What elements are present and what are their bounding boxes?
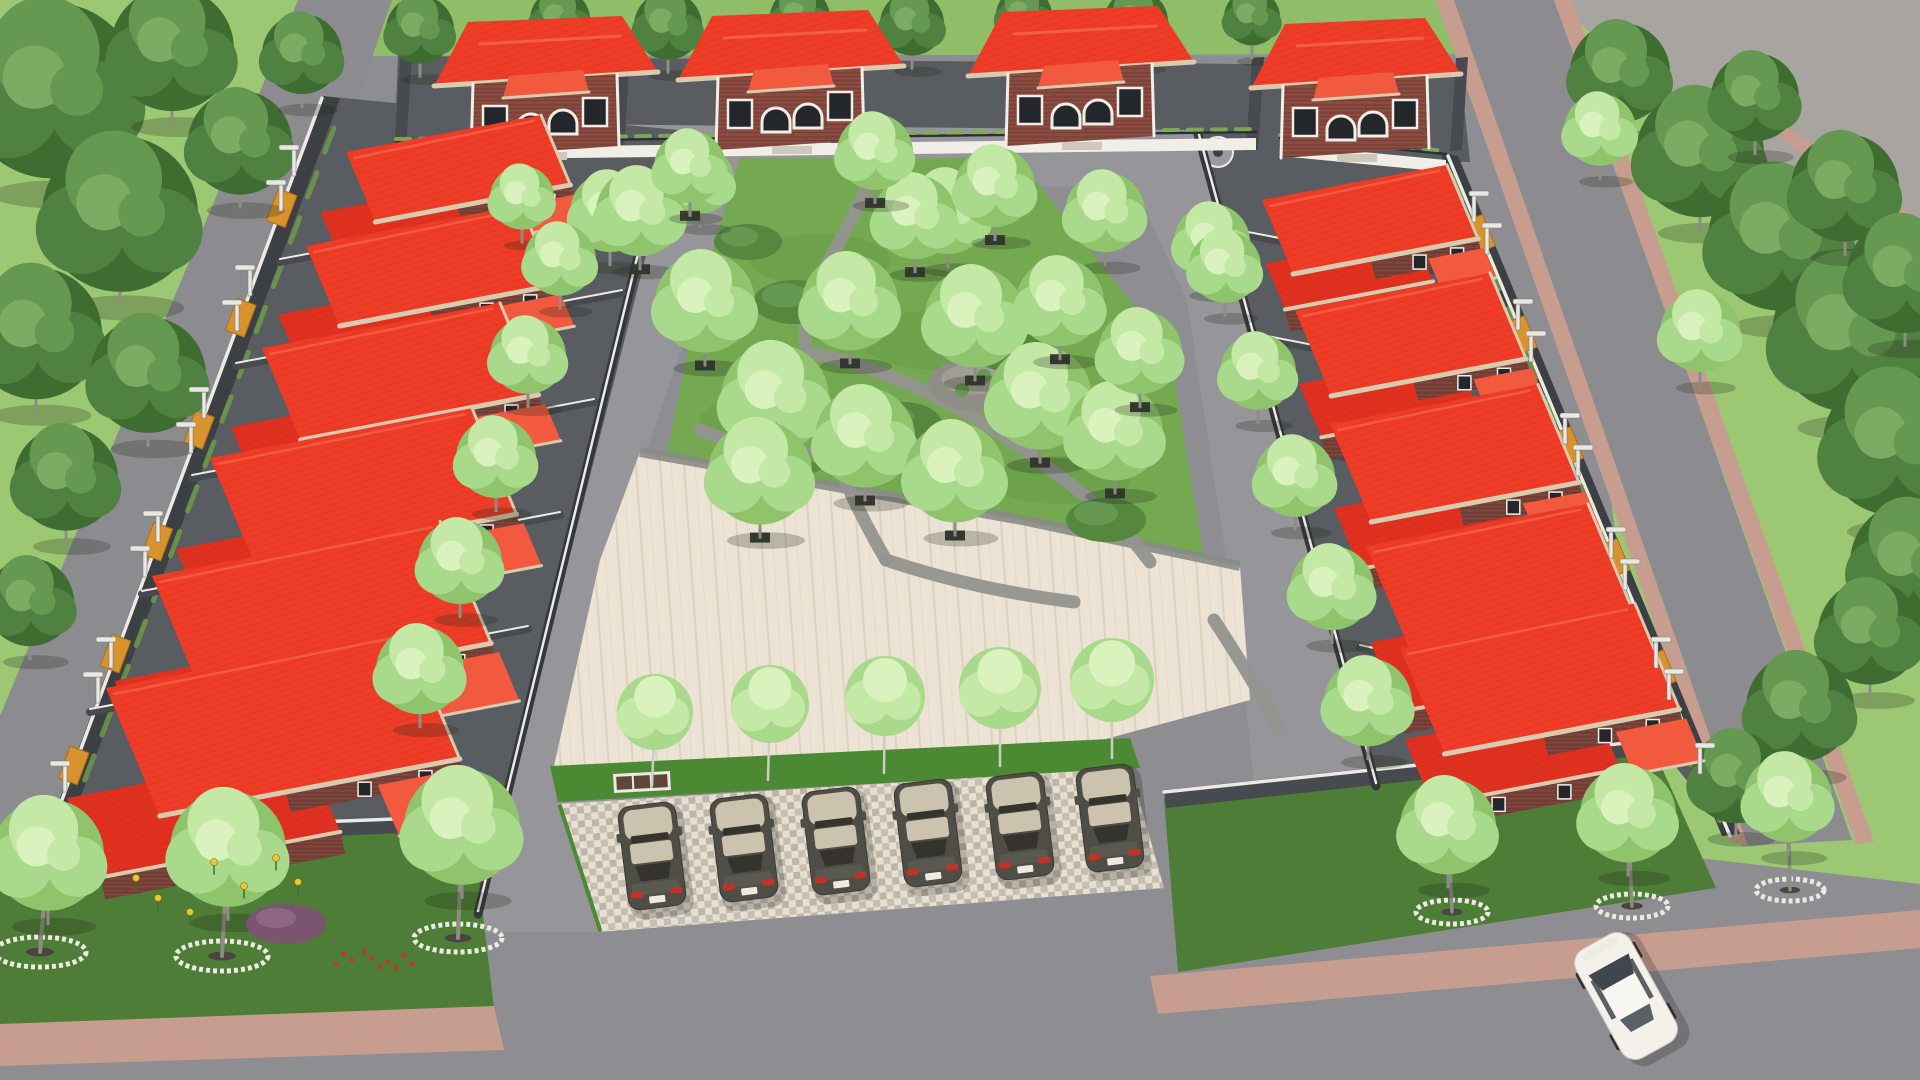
porch-arch: [1052, 104, 1080, 128]
house-window: [1507, 500, 1520, 514]
tree-canopy: [1224, 256, 1246, 278]
tree-shadow: [506, 404, 563, 416]
lamp-pole: [235, 305, 239, 331]
tree-shadow: [1418, 883, 1490, 898]
red-flower: [410, 962, 415, 967]
lamp-arm: [143, 511, 163, 516]
house-window: [1558, 785, 1571, 799]
house-window: [358, 782, 371, 796]
lamp-arm: [1573, 445, 1593, 450]
house-window: [1599, 729, 1612, 743]
red-flower: [342, 952, 347, 957]
entry-steps: [1062, 142, 1102, 150]
tree-shadow: [669, 213, 723, 225]
red-flower: [362, 950, 367, 955]
tree-canopy: [559, 249, 581, 271]
red-flower: [378, 965, 383, 970]
tree-shadow: [278, 104, 338, 117]
tree-shadow: [1579, 176, 1633, 188]
tree-shadow: [1236, 420, 1293, 432]
tree-canopy: [35, 313, 75, 353]
lamp-pole: [1576, 450, 1580, 476]
tree-shadow: [12, 918, 96, 936]
sapling-canopy: [863, 658, 907, 702]
estate-aerial-render: [0, 0, 1920, 1080]
house-window: [1118, 88, 1142, 116]
house-window: [1293, 108, 1317, 136]
porch-arch: [549, 110, 577, 134]
tree-canopy: [1257, 360, 1280, 383]
tree-canopy: [667, 15, 687, 35]
tree-shadow: [853, 200, 910, 212]
lamp-arm: [279, 145, 299, 150]
lamp-pole: [156, 516, 160, 542]
tree-canopy: [1139, 339, 1164, 364]
sunflower: [133, 875, 140, 882]
house-window: [728, 100, 752, 128]
red-flower: [402, 953, 407, 958]
lamp-arm: [96, 637, 116, 642]
tree-canopy: [1787, 785, 1813, 811]
tree-canopy: [29, 589, 55, 615]
tree-shadow: [1271, 527, 1331, 540]
lamp-arm: [1651, 637, 1671, 642]
lamp-pole: [248, 270, 252, 296]
lamp-arm: [176, 422, 196, 427]
lamp-pole: [1529, 336, 1533, 362]
sapling-canopy: [634, 676, 676, 718]
tree-shadow: [1204, 313, 1258, 325]
tree-shadow: [33, 538, 111, 555]
lamp-arm: [1482, 223, 1502, 228]
tree-canopy: [1599, 119, 1621, 141]
lamp-pole: [202, 392, 206, 418]
red-flower: [386, 960, 391, 965]
tree-canopy: [419, 19, 439, 39]
tree-canopy: [954, 457, 984, 487]
sunflower: [273, 855, 280, 862]
sapling-canopy: [749, 667, 792, 710]
tree-shadow: [1033, 355, 1099, 369]
lamp-pole: [1609, 532, 1613, 558]
lamp-pole: [1516, 304, 1520, 330]
tree-canopy: [461, 809, 496, 844]
sunflower: [295, 879, 302, 886]
tree-canopy: [171, 30, 208, 67]
lamp-pole: [1623, 564, 1627, 590]
tree-shadow: [1761, 851, 1827, 865]
red-flower: [350, 958, 355, 963]
tree-canopy: [774, 381, 806, 413]
tree-canopy: [864, 422, 894, 452]
tree-canopy: [849, 288, 878, 317]
lamp-arm: [130, 546, 150, 551]
tree-shadow: [681, 224, 732, 235]
sunflower: [187, 909, 194, 916]
lamp-arm: [1606, 527, 1626, 532]
lamp-pole: [1472, 196, 1476, 222]
porch-arch: [794, 104, 822, 128]
tree-canopy: [1869, 616, 1900, 647]
tree-canopy: [118, 190, 165, 237]
lamp-pole: [1563, 418, 1567, 444]
tree-shadow: [1676, 382, 1736, 395]
tree-canopy: [1699, 320, 1723, 344]
lamp-arm: [1560, 413, 1580, 418]
tree-canopy: [689, 156, 711, 178]
tree-shadow: [924, 531, 999, 547]
tree-canopy: [1844, 171, 1876, 203]
corner-quoin: [1427, 76, 1429, 148]
tree-shadow: [1728, 150, 1794, 164]
house-window: [1492, 797, 1505, 811]
tree-canopy: [1754, 84, 1780, 110]
tree-canopy: [459, 549, 484, 574]
house-window: [1018, 96, 1042, 124]
tree-shadow: [539, 306, 593, 318]
tree-shadow: [1085, 489, 1157, 504]
tree-shadow: [820, 359, 892, 374]
lamp-pole: [109, 642, 113, 668]
lamp-pole: [292, 150, 296, 176]
tree-canopy: [47, 837, 81, 871]
tree-canopy: [147, 357, 182, 392]
tree-shadow: [1598, 871, 1670, 886]
lamp-arm: [1469, 191, 1489, 196]
tree-canopy: [1799, 691, 1831, 723]
tree-canopy: [65, 462, 96, 493]
park-bush-highlight: [1074, 501, 1118, 525]
tree-canopy: [1699, 133, 1737, 171]
tree-canopy: [911, 14, 930, 33]
sapling-canopy: [977, 649, 1022, 694]
tree-canopy: [1294, 465, 1318, 489]
house-window: [583, 98, 607, 126]
corner-quoin: [716, 78, 718, 150]
porch-arch: [1084, 100, 1112, 124]
planter-box: [615, 773, 670, 792]
tree-canopy: [704, 287, 734, 317]
entry-steps: [1337, 154, 1377, 162]
sunflower: [211, 859, 218, 866]
tree-canopy: [1251, 9, 1268, 26]
porch-arch: [1327, 116, 1355, 140]
tree-canopy: [419, 657, 445, 683]
house-window: [1393, 100, 1417, 128]
purple-bush-highlight: [256, 908, 296, 928]
lamp-pole: [1698, 748, 1702, 774]
lamp-arm: [235, 265, 255, 270]
lamp-arm: [1513, 299, 1533, 304]
tree-shadow: [3, 655, 69, 669]
tree-shadow: [435, 613, 498, 626]
corner-quoin: [1152, 64, 1154, 136]
lamp-arm: [266, 180, 286, 185]
lamp-arm: [1695, 743, 1715, 748]
lamp-pole: [96, 677, 100, 703]
lamp-arm: [222, 300, 242, 305]
lamp-pole: [189, 427, 193, 453]
red-flower: [334, 962, 339, 967]
tree-shadow: [971, 237, 1031, 250]
planter-divider: [633, 774, 634, 790]
corner-quoin: [1006, 74, 1008, 146]
tree-shadow: [834, 496, 909, 512]
tree-canopy: [50, 63, 103, 116]
tree-canopy: [227, 831, 262, 866]
tree-canopy: [1627, 800, 1656, 829]
red-flower: [370, 956, 375, 961]
house-window: [828, 92, 852, 120]
tree-canopy: [1447, 812, 1476, 841]
lamp-pole: [1485, 228, 1489, 254]
lamp-arm: [1620, 559, 1640, 564]
tree-canopy: [521, 188, 540, 207]
corner-quoin: [1281, 86, 1283, 158]
tree-shadow: [425, 892, 512, 911]
house-window: [1458, 376, 1471, 390]
tree-shadow: [111, 440, 198, 459]
tree-shadow: [472, 508, 532, 521]
sapling-canopy: [1089, 640, 1135, 686]
tree-canopy: [874, 140, 897, 163]
lamp-pole: [1667, 674, 1671, 700]
tree-canopy: [1039, 381, 1070, 412]
estate-render-canvas: [0, 0, 1920, 1080]
tree-canopy: [994, 175, 1018, 199]
tree-canopy: [1619, 57, 1649, 87]
house-window: [1413, 255, 1426, 269]
tree-shadow: [1115, 403, 1178, 416]
lamp-arm: [1664, 669, 1684, 674]
tree-canopy: [1104, 200, 1128, 224]
tree-canopy: [239, 126, 270, 157]
lamp-pole: [279, 185, 283, 211]
tree-canopy: [495, 446, 519, 470]
tree-shadow: [1341, 755, 1407, 769]
lamp-pole: [1654, 642, 1658, 668]
tree-canopy: [914, 204, 939, 229]
entry-steps: [772, 146, 812, 154]
lamp-arm: [189, 387, 209, 392]
lamp-arm: [50, 761, 70, 766]
tree-canopy: [1059, 289, 1085, 315]
porch-arch: [1359, 112, 1387, 136]
tree-canopy: [1114, 418, 1143, 447]
lamp-arm: [1526, 331, 1546, 336]
corner-quoin: [617, 74, 619, 146]
lamp-arm: [83, 672, 103, 677]
sapling-planter: [615, 773, 670, 792]
tree-canopy: [1331, 575, 1356, 600]
tree-canopy: [639, 199, 665, 225]
tree-canopy: [759, 456, 790, 487]
tree-shadow: [207, 202, 285, 219]
tree-shadow: [1307, 639, 1370, 652]
tree-shadow: [727, 532, 805, 549]
sunflower: [241, 883, 248, 890]
tree-canopy: [527, 344, 550, 367]
lamp-pole: [63, 766, 67, 792]
tree-canopy: [1367, 689, 1393, 715]
tree-shadow: [393, 723, 459, 737]
tree-canopy: [301, 42, 325, 66]
lamp-pole: [143, 551, 147, 577]
red-flower: [394, 966, 399, 971]
sunflower: [155, 895, 162, 902]
tree-canopy: [974, 302, 1004, 332]
porch-arch: [762, 108, 790, 132]
